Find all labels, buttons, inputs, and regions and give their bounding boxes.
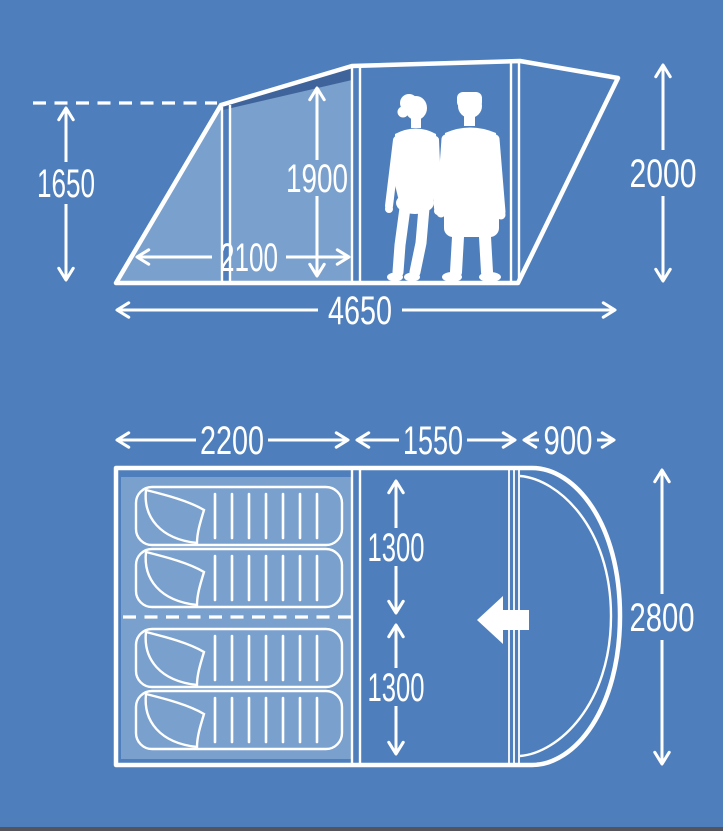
bottom-edge-strip xyxy=(0,827,723,831)
total-depth-label: 2800 xyxy=(630,596,695,640)
tent-dimensions-diagram: 1650 1900 2100 4650 2000 xyxy=(0,0,723,831)
man-arm xyxy=(441,139,446,210)
dimension-sleeping-area-width: 2200 xyxy=(117,419,348,463)
diagram-canvas: 1650 1900 2100 4650 2000 xyxy=(0,0,723,831)
inner-tent-front-pole xyxy=(352,67,360,281)
floor-plan-view: 2200 1550 900 1300 1300 2800 xyxy=(116,419,695,765)
man-torso xyxy=(442,128,499,205)
man-leg xyxy=(485,237,487,272)
dimension-living-area-width: 1550 xyxy=(357,419,515,463)
cabin-a-depth-label: 1300 xyxy=(368,526,425,570)
dimension-front-height: 1650 xyxy=(37,108,95,280)
inner-tent-rear-pole xyxy=(511,63,519,281)
front-height-label: 1650 xyxy=(37,162,95,206)
woman-silhouette xyxy=(385,94,442,282)
woman-leg xyxy=(398,208,405,272)
dimension-porch-width: 900 xyxy=(524,419,614,463)
dimension-total-depth: 2800 xyxy=(630,470,695,764)
side-elevation-view: 1650 1900 2100 4650 2000 xyxy=(33,61,697,333)
rear-height-label: 2000 xyxy=(630,152,697,196)
cabin-b-depth-label: 1300 xyxy=(368,666,425,710)
dimension-cabin-a-depth: 1300 xyxy=(368,481,425,613)
inner-height-label: 1900 xyxy=(286,157,348,201)
total-length-label: 4650 xyxy=(328,289,392,333)
dimension-total-length: 4650 xyxy=(117,289,615,333)
people-silhouettes xyxy=(385,92,506,282)
man-shorts xyxy=(444,197,499,237)
sleeping-divider-lines xyxy=(352,470,360,763)
living-area-width-label: 1550 xyxy=(403,419,463,463)
man-silhouette xyxy=(437,92,506,282)
door-entry-arrow-icon xyxy=(477,596,529,644)
porch-width-label: 900 xyxy=(544,419,593,463)
woman-arm xyxy=(389,140,397,206)
dimension-cabin-b-depth: 1300 xyxy=(368,625,425,754)
woman-leg xyxy=(415,208,424,272)
sleeping-area-width-label: 2200 xyxy=(200,419,264,463)
dimension-rear-height: 2000 xyxy=(630,65,697,281)
front-section-length-label: 2100 xyxy=(220,236,278,280)
man-leg xyxy=(456,237,458,272)
